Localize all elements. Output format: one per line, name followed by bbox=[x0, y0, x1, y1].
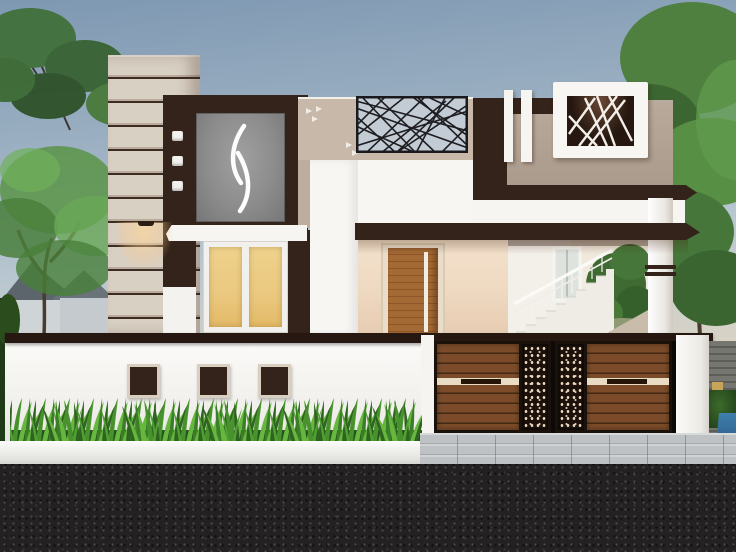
dark-band-vertical bbox=[473, 98, 507, 200]
window-canopy bbox=[166, 225, 307, 241]
window-pane-right bbox=[249, 247, 282, 327]
feature-box-inset bbox=[567, 96, 634, 146]
wall-accent-square-1 bbox=[127, 364, 160, 398]
window-pane-left bbox=[209, 247, 242, 327]
canopy-shadow bbox=[358, 240, 688, 254]
ornament-square-1 bbox=[172, 131, 183, 141]
gate-handle-rail bbox=[437, 378, 519, 385]
gate-pillar-right bbox=[676, 335, 709, 440]
gate-leaf-left bbox=[434, 341, 551, 433]
beige-corner-return bbox=[298, 160, 310, 228]
wall-accent-square-3 bbox=[258, 364, 291, 398]
white-bar-2 bbox=[521, 90, 532, 162]
white-curb bbox=[0, 441, 430, 466]
column-bracket-lower bbox=[645, 272, 676, 276]
entry-door bbox=[388, 248, 438, 337]
gate-wood-slats bbox=[437, 344, 519, 430]
gate-handle-slot bbox=[607, 379, 647, 384]
downlight-fixture bbox=[138, 221, 154, 226]
asphalt-road bbox=[0, 464, 736, 552]
door-handle-strip bbox=[424, 252, 428, 332]
gate-wood-slats bbox=[587, 344, 669, 430]
gate-handle-rail bbox=[587, 378, 669, 385]
s-curve-ornament bbox=[196, 113, 285, 222]
gate-leaf-right bbox=[555, 341, 672, 433]
scene-canvas bbox=[0, 0, 736, 552]
porch-canopy bbox=[355, 223, 700, 240]
wall-accent-square-2 bbox=[197, 364, 230, 398]
downlight-glow bbox=[116, 222, 172, 268]
gate-perforated-panel bbox=[558, 344, 584, 430]
driveway-gate bbox=[434, 341, 676, 433]
dark-feature-panel-right-strip bbox=[288, 230, 310, 335]
gray-inset-panel bbox=[196, 113, 285, 222]
wall-patch-below-panel bbox=[163, 287, 196, 334]
gate-perforated-panel bbox=[522, 344, 548, 430]
ornament-square-3 bbox=[172, 181, 183, 191]
gate-handle-slot bbox=[461, 379, 501, 384]
diagonal-lines bbox=[567, 96, 634, 146]
gate-pillar-left bbox=[421, 335, 434, 433]
column-bracket-upper bbox=[645, 265, 676, 269]
lattice-screen bbox=[356, 96, 468, 153]
white-bar-1 bbox=[504, 90, 513, 162]
stair-opening bbox=[508, 240, 648, 337]
staircase bbox=[508, 240, 648, 337]
paved-driveway bbox=[420, 433, 736, 464]
ornament-square-2 bbox=[172, 156, 183, 166]
front-white-pier bbox=[310, 160, 358, 335]
fern-hedge bbox=[10, 394, 422, 444]
